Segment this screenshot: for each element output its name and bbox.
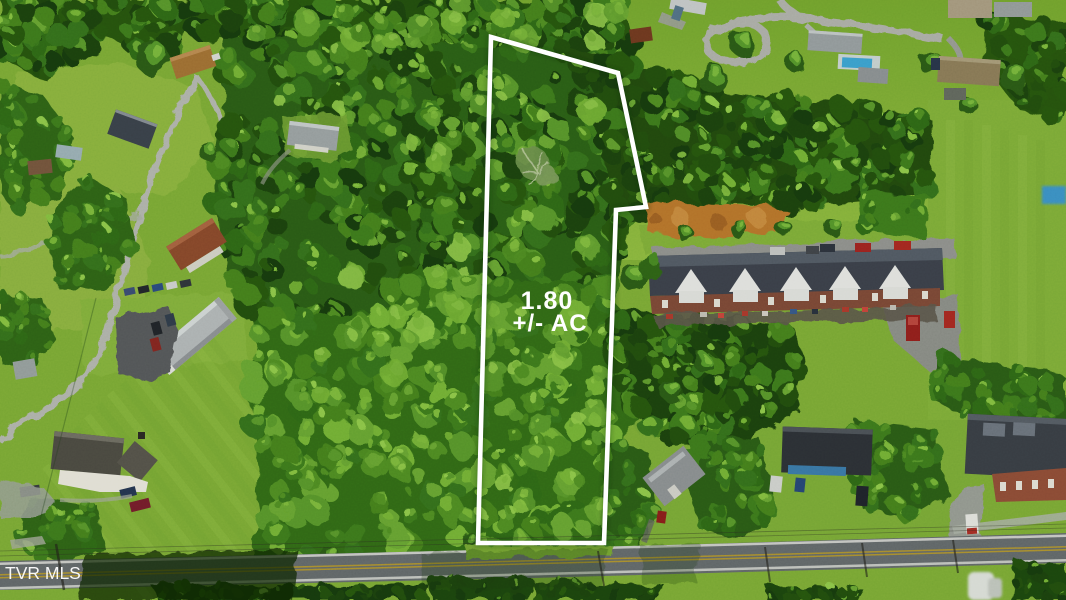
- svg-text:TVR MLS: TVR MLS: [5, 563, 81, 583]
- svg-text:+/- AC: +/- AC: [512, 310, 587, 337]
